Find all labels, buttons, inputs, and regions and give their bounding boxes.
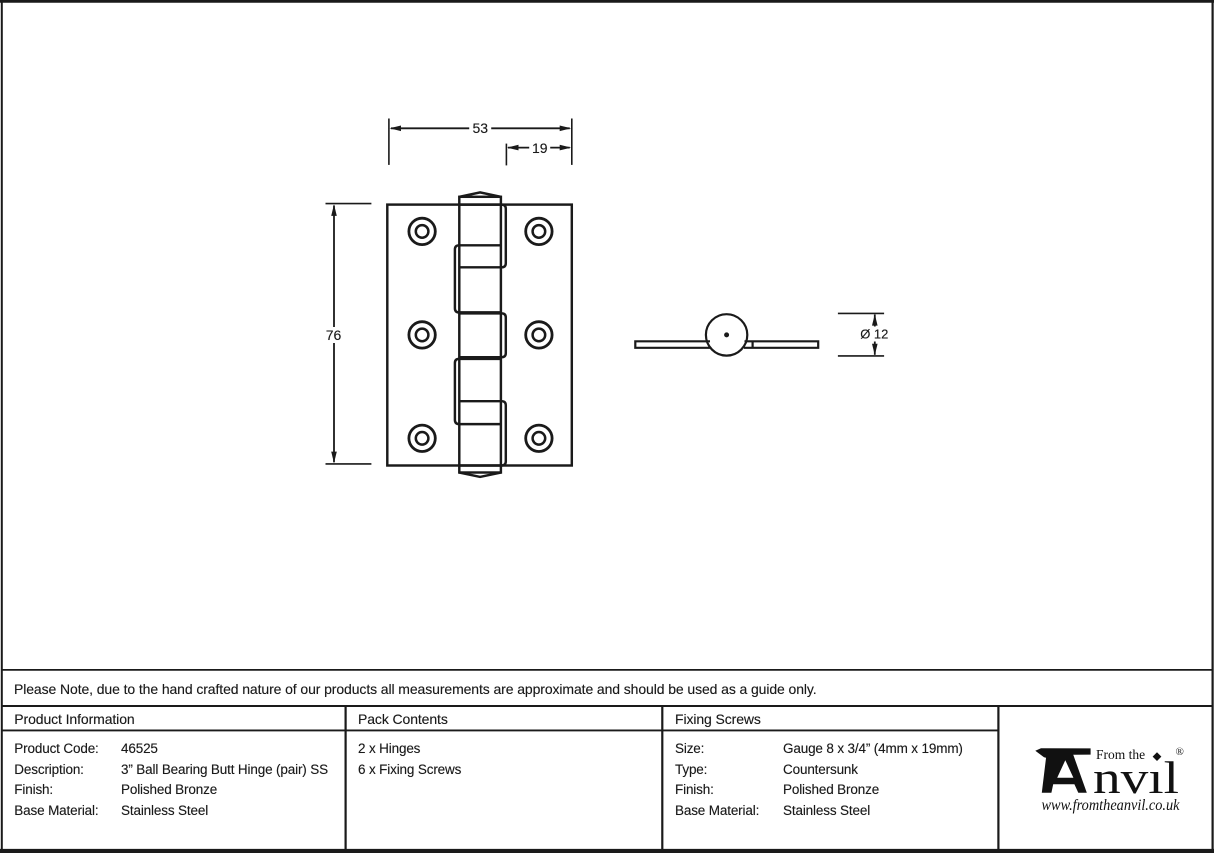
svg-text:www.fromtheanvil.co.uk: www.fromtheanvil.co.uk — [1042, 797, 1181, 814]
svg-text:nvıl: nvıl — [1093, 753, 1179, 803]
svg-text:®: ® — [1176, 746, 1184, 758]
